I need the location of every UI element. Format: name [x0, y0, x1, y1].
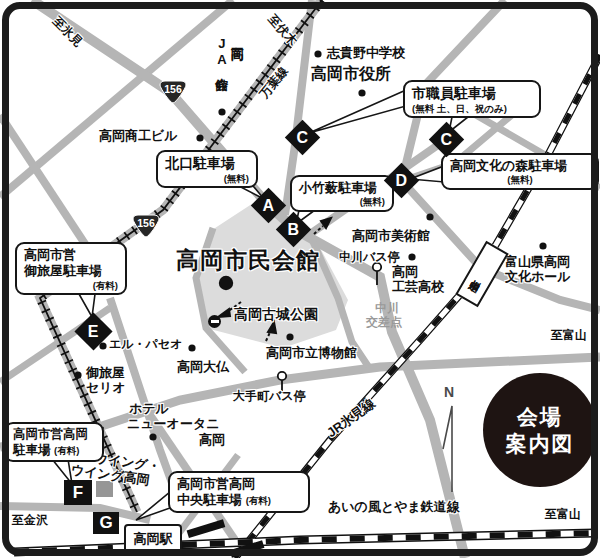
station-platform-bar	[187, 519, 226, 538]
kogei-hs-label: 高岡工芸高校	[392, 264, 444, 295]
etchu-nakagawa-station-label: 越中中川	[477, 271, 486, 276]
otaya-serio-label: 御旅屋セリオ	[86, 365, 126, 396]
building-block	[96, 481, 113, 497]
badge-line2: 案内図	[506, 430, 575, 457]
nakagawa-crossing-label: 中川交差点	[366, 301, 402, 329]
shikino-jhs-label: 志貴野中学校	[327, 45, 405, 60]
bunka-hall-label: 富山県高岡文化ホール	[505, 254, 571, 285]
callout-otaya-parking: 高岡市営 御旅屋駐車場 (有料)	[15, 242, 127, 295]
callout-kotakeyabu-parking: 小竹薮駐車場 (無料)	[290, 175, 394, 212]
no-entry-icon	[208, 315, 221, 328]
venue-guide-map: 156 156 至氷見 至伏木 至富山 至富山 至金沢 万葉線 JR氷見線 あい…	[0, 0, 600, 558]
direction-to-kanazawa: 至金沢	[12, 513, 48, 527]
badge-line1: 会場	[517, 403, 563, 430]
route-number: 156	[132, 217, 160, 229]
takaoka-station-label: 高岡駅	[134, 530, 173, 548]
el-paseo-label: エル・パセオ	[109, 337, 182, 351]
ja-hall-label: 高岡JA会館	[214, 36, 245, 118]
ainokaze-railway-line	[14, 533, 595, 552]
ainokaze-line-label: あいの風とやま鉄道線	[328, 499, 460, 514]
daibutsu-label: 高岡大仏	[177, 359, 229, 374]
callout-shiei-takaoka-parking: 高岡市営高岡 駐車場 (有料)	[4, 422, 104, 462]
shoko-building-label: 高岡商工ビル	[99, 128, 178, 143]
nakagawa-bus-stop-label: 中川バス停	[339, 250, 400, 264]
takaoka-station-box: 高岡駅	[124, 524, 182, 553]
callout-shishokuin-parking: 市職員駐車場 (無料 土、日、祝のみ)	[403, 80, 541, 118]
route-156-shield: 156	[132, 214, 160, 238]
compass-n-label: N	[444, 384, 454, 400]
route-156-shield: 156	[159, 80, 187, 104]
venue-guide-badge: 会場 案内図	[483, 373, 597, 487]
kojo-park-label: 高岡古城公園	[234, 306, 318, 323]
marker-F: F	[64, 480, 92, 505]
art-museum-label: 高岡市美術館	[352, 228, 430, 243]
city-hall-label: 高岡市役所	[311, 65, 391, 84]
callout-bunka-mori-parking: 高岡文化の森駐車場 (無料)	[441, 153, 599, 190]
civic-hall-label: 高岡市民会館	[176, 247, 320, 274]
direction-to-toyama: 至富山	[551, 328, 587, 342]
otemachi-bus-stop-label: 大手町バス停	[233, 389, 306, 403]
callout-kitaguchi-parking: 北口駐車場 (無料)	[156, 150, 258, 188]
marker-G: G	[93, 512, 119, 534]
route-number: 156	[159, 83, 187, 95]
callout-shiei-chuo-parking: 高岡市営高岡 中央駐車場 (有料)	[168, 471, 310, 513]
direction-to-toyama-bottom: 至富山	[545, 507, 581, 521]
city-museum-label: 高岡市立博物館	[266, 345, 357, 360]
hotel-label: ホテルニューオータニ高岡	[127, 401, 225, 447]
